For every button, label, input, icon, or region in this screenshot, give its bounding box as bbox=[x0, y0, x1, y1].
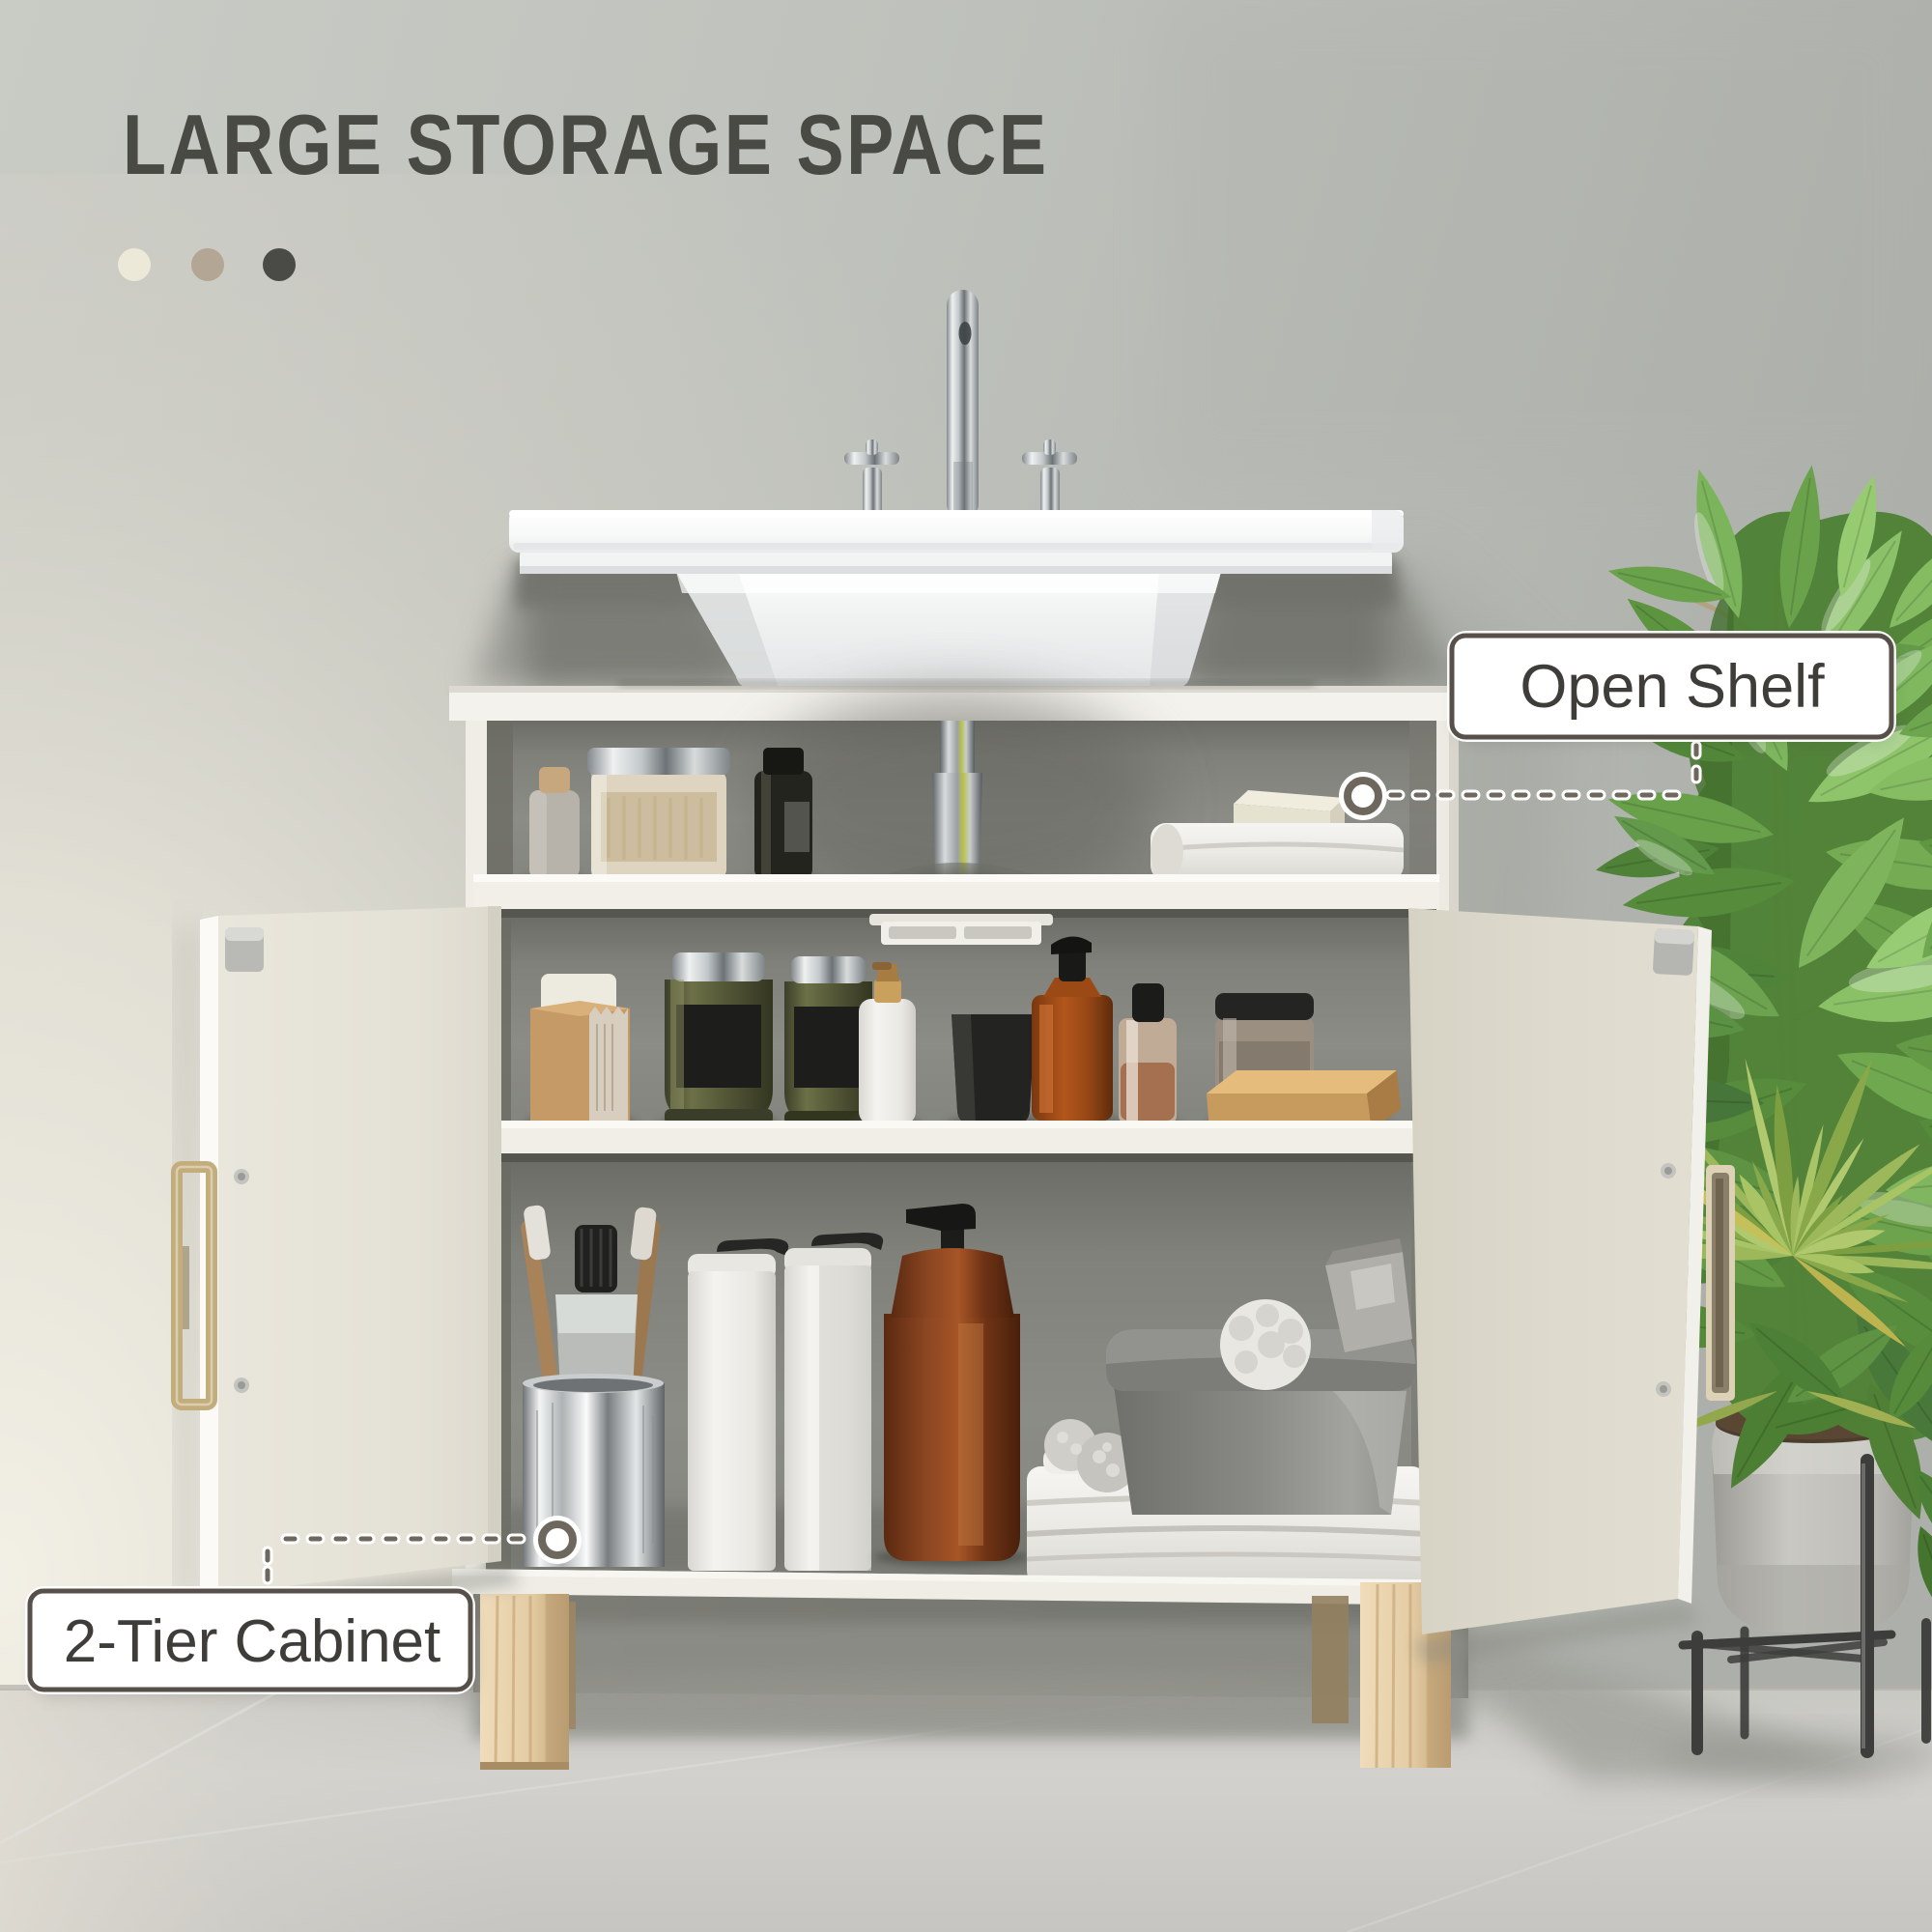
svg-text:Open Shelf: Open Shelf bbox=[1520, 653, 1825, 721]
svg-text:LARGE STORAGE SPACE: LARGE STORAGE SPACE bbox=[123, 99, 1049, 193]
svg-text:2-Tier Cabinet: 2-Tier Cabinet bbox=[64, 1608, 441, 1675]
